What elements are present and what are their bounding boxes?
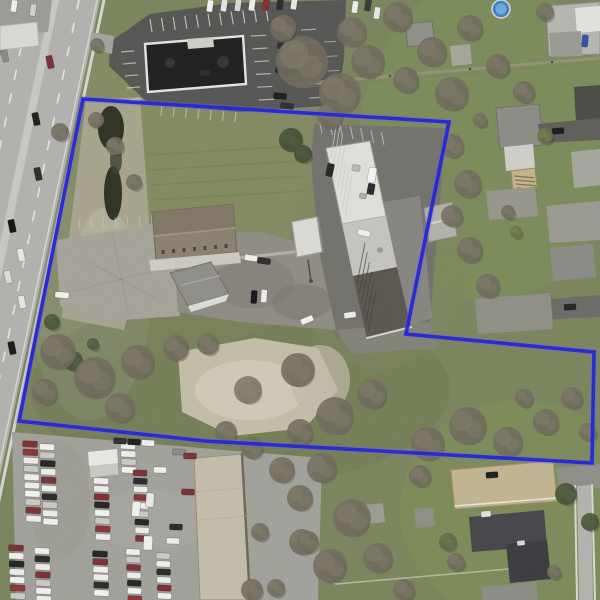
film-grain <box>0 0 600 600</box>
scene-layers <box>0 0 600 600</box>
screenshot-root <box>0 0 600 600</box>
aerial-map <box>0 0 600 600</box>
